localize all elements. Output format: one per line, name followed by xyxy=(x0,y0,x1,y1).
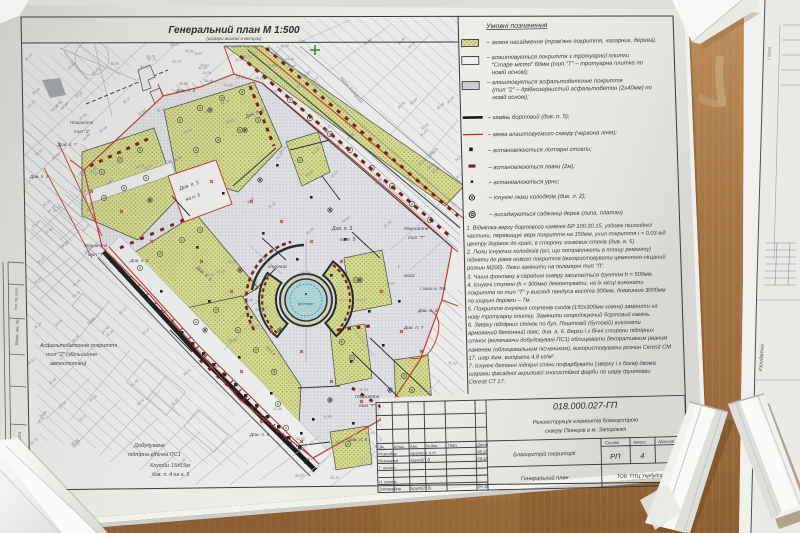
svg-text:і дата: і дата xyxy=(766,46,773,60)
